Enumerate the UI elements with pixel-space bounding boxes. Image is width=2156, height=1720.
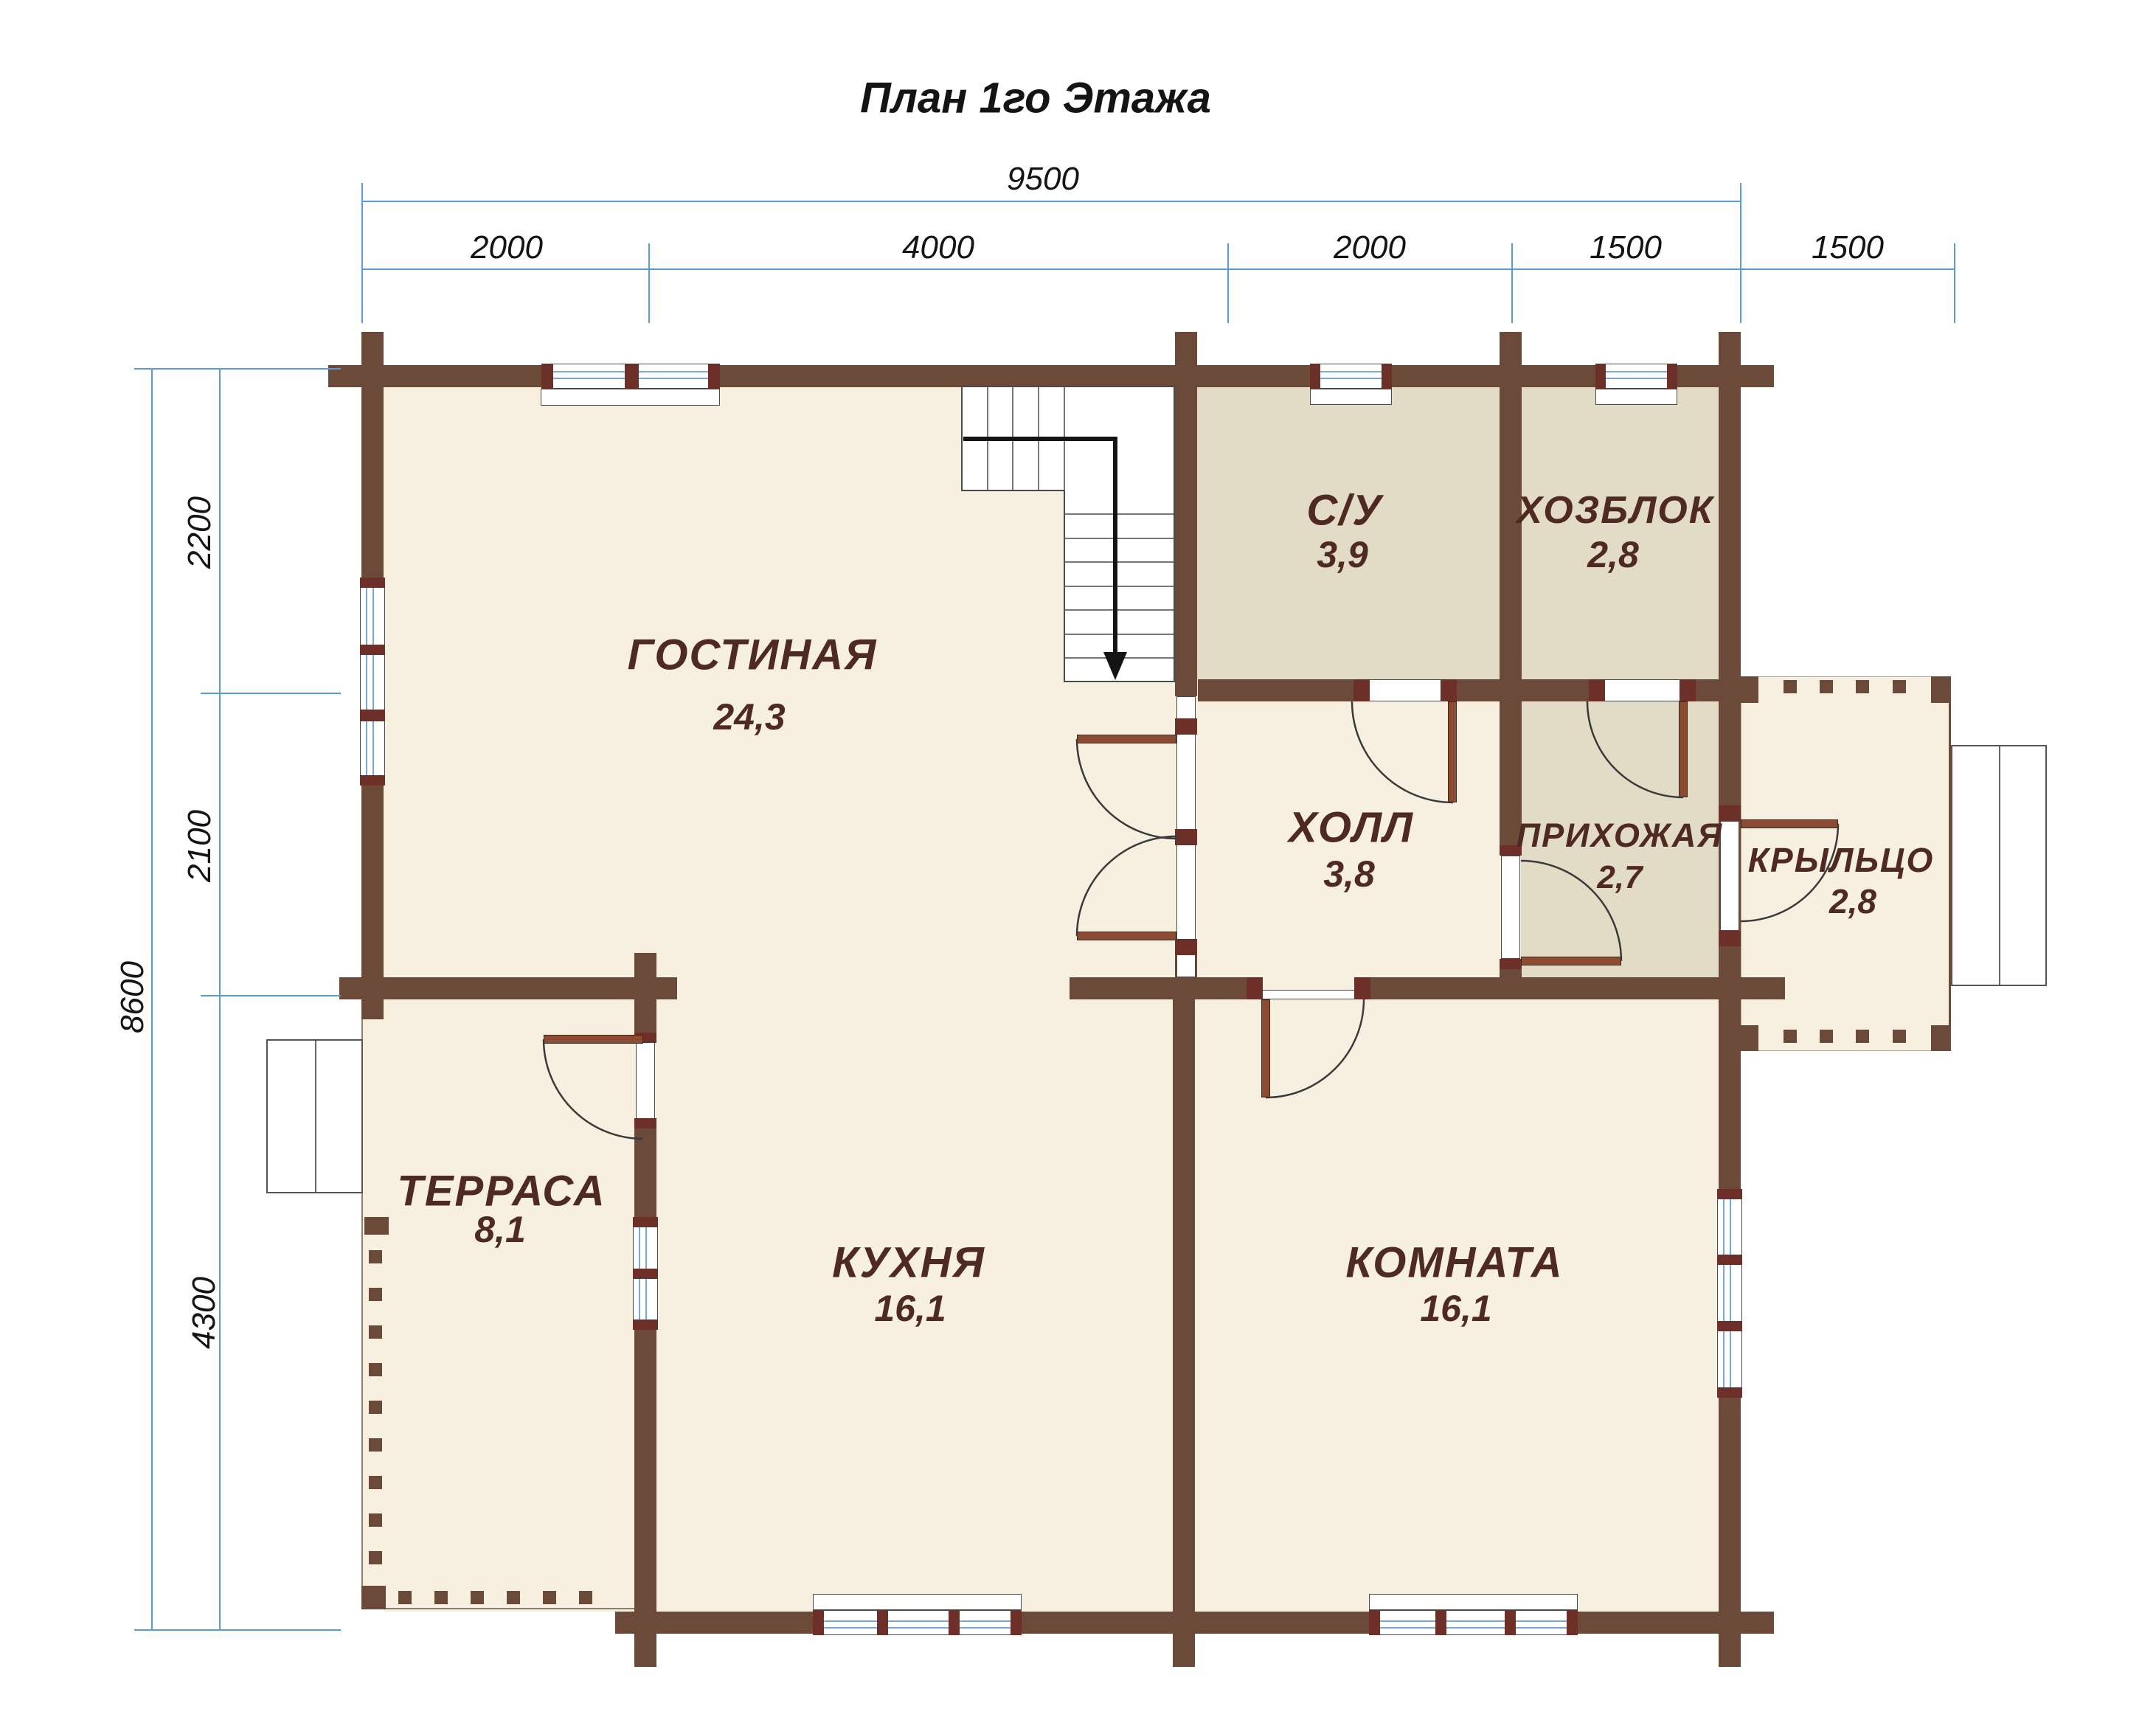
window-sill	[813, 1594, 1022, 1610]
post-marker	[369, 1401, 382, 1414]
room-label-wc: С/У	[1306, 486, 1382, 535]
wall-terrace-kitchen	[634, 1128, 656, 1217]
door-frame-hall-entry	[1501, 856, 1520, 959]
door-leaf-hall-entry	[1521, 957, 1621, 965]
door-leaf-hall-room	[1261, 999, 1270, 1097]
room-label-porch: КРЫЛЬЦО	[1748, 840, 1934, 880]
wall-exterior-right	[1719, 365, 1741, 1634]
room-area-utility: 2,8	[1587, 533, 1639, 576]
post-marker	[1820, 1030, 1833, 1043]
window-sill	[541, 389, 720, 406]
log-end	[634, 953, 656, 977]
log-end	[361, 332, 384, 365]
room-area-porch: 2,8	[1829, 881, 1876, 921]
door-jamb	[1354, 977, 1370, 999]
window-mullion	[1717, 1387, 1742, 1398]
window-mullion	[1369, 1610, 1380, 1635]
wall-wc-utility-partition	[1500, 365, 1522, 856]
room-area-entry: 2,7	[1597, 859, 1642, 896]
door-leaf-living-hall-lower	[1077, 932, 1176, 940]
window-glazing	[1600, 378, 1673, 379]
door-frame-hall-room	[1247, 990, 1370, 999]
wall-mid-horizontal-east	[1370, 977, 1785, 999]
post-marker	[1893, 1030, 1906, 1043]
window-mullion	[1505, 1610, 1516, 1635]
door-jamb	[634, 1118, 656, 1128]
post-marker	[434, 1591, 448, 1604]
post-marker	[1856, 1030, 1869, 1043]
dim-left-total: 8600	[114, 961, 151, 1033]
window-glazing	[817, 1627, 1017, 1629]
dim-left-seg-3: 4300	[186, 1277, 223, 1349]
window-mullion	[360, 645, 385, 655]
room-label-utility: ХОЗБЛОК	[1517, 488, 1713, 533]
room-label-entry: ПРИХОЖАЯ	[1517, 816, 1724, 855]
room-terrace-floor	[361, 999, 636, 1609]
window-mullion	[1667, 364, 1677, 389]
room-label-room: КОМНАТА	[1345, 1238, 1563, 1288]
window-glazing	[366, 581, 367, 782]
window-mullion	[813, 1610, 824, 1635]
window-room-bottom	[1369, 1610, 1578, 1635]
door-leaf-living-hall-upper	[1077, 735, 1176, 743]
window-kitchen-bottom	[813, 1610, 1022, 1635]
log-end	[634, 1634, 656, 1667]
post-marker	[1784, 1030, 1797, 1043]
dim-top-seg-4: 1500	[1590, 229, 1662, 266]
wall-terrace-kitchen	[634, 1330, 656, 1612]
post-marker	[369, 1551, 382, 1564]
window-sill	[1369, 1594, 1578, 1610]
porch-corner-post	[1931, 1025, 1951, 1051]
wall-exterior-bottom	[615, 1612, 1774, 1634]
log-end	[1719, 332, 1741, 365]
wall-hall-top	[1696, 679, 1719, 701]
door-leaf-utility	[1679, 701, 1688, 797]
window-glazing	[1314, 371, 1387, 372]
door-jamb	[1441, 679, 1457, 701]
window-mullion	[1717, 1189, 1742, 1199]
dim-top-seg-1: 2000	[471, 229, 543, 266]
door-leaf-front	[1741, 819, 1838, 828]
window-mullion	[360, 775, 385, 786]
post-marker	[369, 1325, 382, 1339]
door-leaf-terrace-kitchen	[544, 1035, 643, 1044]
porch-steps-riser	[1999, 746, 2000, 985]
room-area-room: 16,1	[1420, 1287, 1491, 1330]
post-marker	[369, 1363, 382, 1376]
post-marker	[364, 1217, 389, 1235]
room-label-kitchen: КУХНЯ	[832, 1238, 985, 1288]
post-marker	[1856, 680, 1869, 693]
window-mullion	[625, 364, 639, 389]
window-mullion	[1717, 1255, 1742, 1265]
window-mullion	[1595, 364, 1606, 389]
wall-kitchen-room-partition	[1173, 999, 1195, 1612]
log-end	[1173, 1634, 1195, 1667]
door-jamb	[1680, 679, 1696, 701]
window-glazing	[1373, 1627, 1573, 1629]
wall-hall-top	[1198, 679, 1353, 701]
door-jamb	[1175, 939, 1197, 955]
window-mullion	[877, 1610, 888, 1635]
door-jamb	[1500, 959, 1522, 969]
wall-terrace-kitchen	[634, 999, 656, 1033]
door-frame-terrace-kitchen	[636, 1033, 655, 1128]
porch-corner-post	[1741, 676, 1758, 703]
post-marker	[1820, 680, 1833, 693]
window-sill	[1310, 389, 1392, 405]
window-mullion	[360, 578, 385, 588]
door-jamb	[1175, 718, 1197, 735]
window-mullion	[541, 364, 553, 389]
door-jamb	[1589, 679, 1605, 701]
dim-porch-width: 1500	[1812, 229, 1884, 266]
window-mullion	[1310, 364, 1320, 389]
window-mullion	[633, 1217, 658, 1227]
post-marker	[369, 1250, 382, 1263]
porch-corner-post	[1931, 676, 1951, 703]
post-marker	[369, 1288, 382, 1301]
window-glazing	[1314, 378, 1387, 379]
room-area-wc: 3,9	[1317, 533, 1368, 576]
post-marker	[369, 1513, 382, 1527]
room-area-kitchen: 16,1	[874, 1287, 946, 1330]
room-label-hall: ХОЛЛ	[1289, 803, 1414, 853]
window-sill	[1595, 389, 1677, 405]
terrace-steps-riser	[315, 1041, 316, 1192]
post-marker	[369, 1438, 382, 1452]
porch-corner-post	[1741, 1025, 1758, 1051]
door-jamb	[1175, 829, 1197, 845]
window-utility-top	[1595, 364, 1677, 389]
page-title: План 1го Этажа	[860, 74, 1211, 123]
window-glazing	[1373, 1620, 1573, 1622]
post-marker	[579, 1591, 592, 1604]
window-mullion	[1717, 1321, 1742, 1331]
post-marker	[369, 1476, 382, 1489]
dim-left-seg-2: 2100	[181, 810, 218, 882]
window-mullion	[633, 1269, 658, 1279]
room-area-hall: 3,8	[1323, 853, 1375, 895]
window-glazing	[1600, 371, 1673, 372]
window-wc-top	[1310, 364, 1392, 389]
window-mullion	[1435, 1610, 1446, 1635]
post-marker	[543, 1591, 556, 1604]
log-end	[1719, 1634, 1741, 1667]
door-leaf-wc	[1448, 701, 1457, 802]
wall-mid-horizontal-center	[1070, 977, 1247, 999]
window-glazing	[372, 581, 374, 782]
window-mullion	[1567, 1610, 1578, 1635]
log-end	[1175, 332, 1197, 365]
log-end	[1500, 332, 1522, 365]
door-jamb	[1247, 977, 1263, 999]
post-marker	[471, 1591, 484, 1604]
room-label-living: ГОСТИНАЯ	[628, 631, 878, 680]
window-glazing	[1730, 1192, 1731, 1395]
dim-left-seg-1: 2200	[181, 496, 218, 569]
floor-plan-canvas: План 1го Этажа 9500 2000 4000 2000 1500 …	[0, 0, 2156, 1720]
post-marker	[398, 1591, 412, 1604]
dim-top-total: 9500	[1007, 161, 1079, 198]
window-mullion	[360, 710, 385, 721]
window-glazing	[817, 1620, 1017, 1622]
window-mullion	[949, 1610, 960, 1635]
room-area-terrace: 8,1	[474, 1208, 526, 1251]
wall-stairs-east	[1175, 365, 1197, 696]
window-mullion	[1011, 1610, 1022, 1635]
dim-top-seg-3: 2000	[1334, 229, 1406, 266]
door-jamb	[1719, 931, 1741, 946]
door-jamb	[1353, 679, 1370, 701]
room-area-living: 24,3	[713, 696, 785, 738]
window-mullion	[708, 364, 720, 389]
wall-mid-horizontal-west	[339, 977, 677, 999]
window-glazing	[1723, 1192, 1725, 1395]
post-marker	[507, 1591, 520, 1604]
post-marker	[361, 1586, 386, 1609]
post-marker	[1893, 680, 1906, 693]
window-mullion	[1382, 364, 1392, 389]
window-mullion	[633, 1320, 658, 1330]
post-marker	[1784, 680, 1797, 693]
dim-top-seg-2: 4000	[902, 229, 974, 266]
wall-hall-top	[1457, 679, 1589, 701]
